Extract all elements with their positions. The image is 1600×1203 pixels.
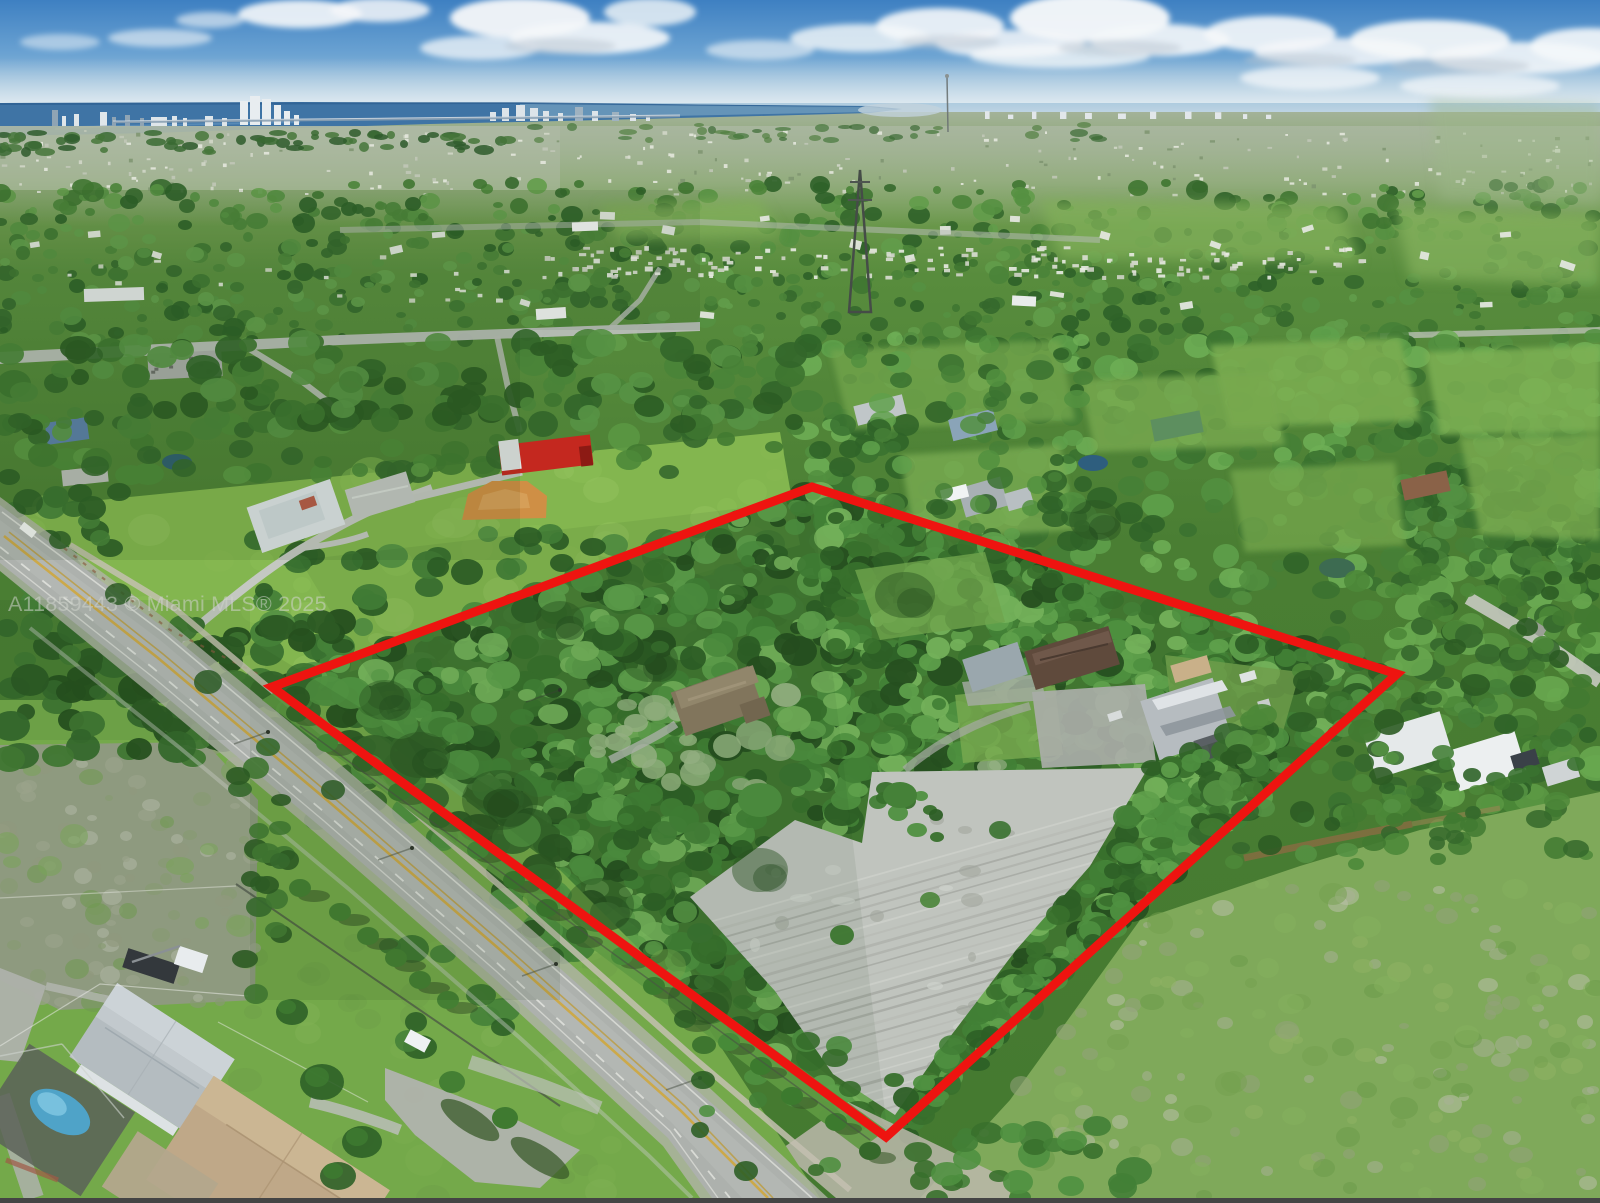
svg-text:A11859443 © Miami MLS® 2025: A11859443 © Miami MLS® 2025 (8, 592, 327, 616)
